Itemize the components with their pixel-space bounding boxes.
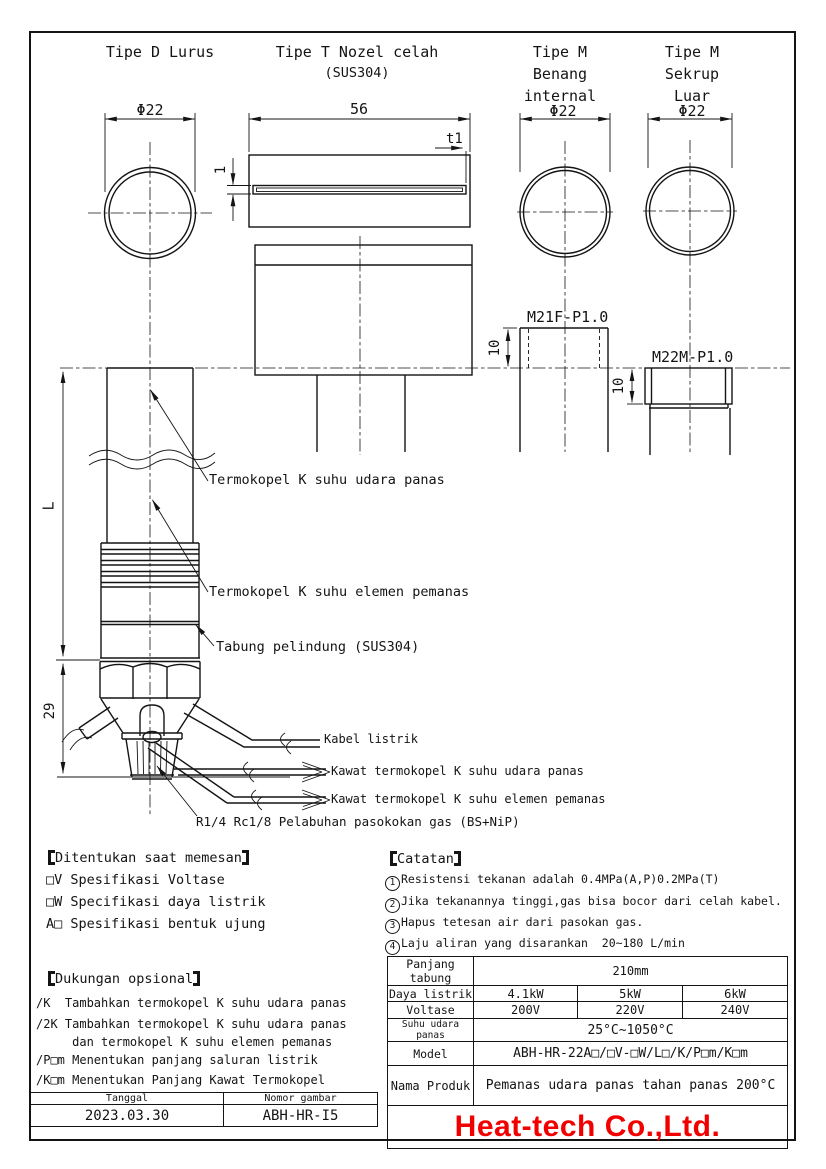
view-tipe-m-luar xyxy=(627,113,737,455)
note-text: Jika tekanannya tinggi,gas bisa bocor da… xyxy=(401,894,782,908)
spec-label: Panjang tabung xyxy=(388,957,474,986)
bracket-open-icon xyxy=(46,971,55,986)
spec-value: 210mm xyxy=(474,957,788,986)
notes-heading-text: Catatan xyxy=(397,851,454,867)
table-row: Heat-tech Co.,Ltd. xyxy=(388,1106,788,1149)
optional-item: /K□m Menentukan Panjang Kawat Termokopel xyxy=(36,1074,325,1088)
table-row: 2023.03.30 ABH-HR-I5 xyxy=(31,1105,378,1127)
label-power-cable: Kabel listrik xyxy=(324,733,418,747)
ordering-item: □V Spesifikasi Voltase xyxy=(46,873,225,889)
notes-heading: Catatan xyxy=(388,851,463,868)
drawing-number-value: ABH-HR-I5 xyxy=(224,1105,378,1127)
dim-nozzle-length: 56 xyxy=(350,101,368,118)
view-title-tipe-m-internal-1: Tipe M xyxy=(533,44,587,61)
view-title-tipe-d: Tipe D Lurus xyxy=(106,44,214,61)
circled-number-icon: 4 xyxy=(385,940,400,955)
cables-wires xyxy=(148,704,330,810)
table-row: Voltase 200V 220V 240V xyxy=(388,1002,788,1019)
optional-item: /2K Tambahkan termokopel K suhu udara pa… xyxy=(36,1018,347,1032)
date-label: Tanggal xyxy=(31,1093,224,1105)
label-wire-heater: Kawat termokopel K suhu elemen pemanas xyxy=(331,793,606,807)
spec-value: ABH-HR-22A□/□V-□W/L□/K/P□m/K□m xyxy=(474,1042,788,1066)
spec-label: Nama Produk xyxy=(388,1066,474,1106)
ordering-item: □W Specifikasi daya listrik xyxy=(46,895,265,911)
label-thermocouple-air: Termokopel K suhu udara panas xyxy=(209,473,445,489)
optional-heading: Dukungan opsional xyxy=(46,971,202,988)
note-item: 4Laju aliran yang disarankan 20~180 L/mi… xyxy=(385,937,685,955)
dim-dia-m-luar: Φ22 xyxy=(678,103,705,120)
optional-item: dan termokopel K suhu elemen pemanas xyxy=(36,1036,332,1050)
view-main-body xyxy=(62,142,215,815)
view-tipe-m-internal xyxy=(503,113,613,452)
note-text: Hapus tetesan air dari pasokan gas. xyxy=(401,915,643,929)
spec-value: 25°C~1050°C xyxy=(474,1019,788,1042)
drawing-number-label: Nomor gambar xyxy=(224,1093,378,1105)
spec-value: 240V xyxy=(683,1002,788,1019)
dim-thread-depth-m22m: 10 xyxy=(611,378,627,395)
note-item: 2Jika tekanannya tinggi,gas bisa bocor d… xyxy=(385,895,782,913)
spec-label: Daya listrik xyxy=(388,986,474,1002)
note-text: Laju aliran yang disarankan 20~180 L/min xyxy=(401,936,685,950)
spec-table: Panjang tabung 210mm Daya listrik 4.1kW … xyxy=(387,956,788,1149)
optional-heading-text: Dukungan opsional xyxy=(55,971,193,987)
table-row: Tanggal Nomor gambar xyxy=(31,1093,378,1105)
label-gas-port: R1/4 Rc1/8 Pelabuhan pasokokan gas (BS+N… xyxy=(196,815,520,829)
bracket-close-icon xyxy=(242,850,251,865)
bracket-close-icon xyxy=(193,971,202,986)
company-logo: Heat-tech Co.,Ltd. xyxy=(388,1106,788,1149)
spec-value: Pemanas udara panas tahan panas 200°C xyxy=(474,1066,788,1106)
spec-value: 220V xyxy=(578,1002,683,1019)
optional-item: /P□m Menentukan panjang saluran listrik xyxy=(36,1054,318,1068)
length-dimensions xyxy=(56,372,290,777)
dim-body-length: L xyxy=(40,501,57,510)
ordering-heading: Ditentukan saat memesan xyxy=(46,850,251,867)
thread-label-m22m: M22M-P1.0 xyxy=(652,349,733,366)
ordering-item: A□ Spesifikasi bentuk ujung xyxy=(46,917,265,933)
dim-thread-depth-m21f: 10 xyxy=(487,340,503,357)
ordering-heading-text: Ditentukan saat memesan xyxy=(55,850,242,866)
spec-value: 5kW xyxy=(578,986,683,1002)
bracket-open-icon xyxy=(46,850,55,865)
circled-number-icon: 1 xyxy=(385,876,400,891)
drawing-sheet: Tipe D Lurus Tipe T Nozel celah (SUS304)… xyxy=(0,0,826,1169)
note-item: 1Resistensi tekanan adalah 0.4MPa(A,P)0.… xyxy=(385,873,720,891)
view-title-tipe-m-luar-2: Sekrup xyxy=(665,66,719,83)
material-label: (SUS304) xyxy=(324,66,389,82)
spec-value: 4.1kW xyxy=(474,986,578,1002)
table-row: Panjang tabung 210mm xyxy=(388,957,788,986)
spec-value: 200V xyxy=(474,1002,578,1019)
spec-label: Voltase xyxy=(388,1002,474,1019)
dim-dia-m-internal: Φ22 xyxy=(549,103,576,120)
optional-item: /K Tambahkan termokopel K suhu udara pan… xyxy=(36,997,347,1011)
thread-label-m21f: M21F-P1.0 xyxy=(527,309,608,326)
table-row: Daya listrik 4.1kW 5kW 6kW xyxy=(388,986,788,1002)
note-text: Resistensi tekanan adalah 0.4MPa(A,P)0.2… xyxy=(401,872,720,886)
spec-label: Model xyxy=(388,1042,474,1066)
dim-wall-thickness: t1 xyxy=(446,131,463,147)
table-row: Suhu udara panas 25°C~1050°C xyxy=(388,1019,788,1042)
circled-number-icon: 2 xyxy=(385,898,400,913)
label-wire-air: Kawat termokopel K suhu udara panas xyxy=(331,765,584,779)
dim-lower-section: 29 xyxy=(42,703,58,720)
date-value: 2023.03.30 xyxy=(31,1105,224,1127)
label-thermocouple-heater: Termokopel K suhu elemen pemanas xyxy=(209,585,469,601)
dim-slot-width: 1 xyxy=(213,166,229,174)
view-title-tipe-t: Tipe T Nozel celah xyxy=(276,44,439,61)
bracket-close-icon xyxy=(454,851,463,866)
spec-value: 6kW xyxy=(683,986,788,1002)
note-item: 3Hapus tetesan air dari pasokan gas. xyxy=(385,916,643,934)
dim-dia-tipe-d: Φ22 xyxy=(136,102,163,119)
bracket-open-icon xyxy=(388,851,397,866)
spec-label: Suhu udara panas xyxy=(388,1019,474,1042)
label-protective-tube: Tabung pelindung (SUS304) xyxy=(216,640,419,656)
view-title-tipe-m-internal-2: Benang xyxy=(533,66,587,83)
table-row: Nama Produk Pemanas udara panas tahan pa… xyxy=(388,1066,788,1106)
table-row: Model ABH-HR-22A□/□V-□W/L□/K/P□m/K□m xyxy=(388,1042,788,1066)
circled-number-icon: 3 xyxy=(385,919,400,934)
view-title-tipe-m-luar-1: Tipe M xyxy=(665,44,719,61)
title-block: Tanggal Nomor gambar 2023.03.30 ABH-HR-I… xyxy=(30,1092,378,1127)
view-tipe-t xyxy=(227,113,472,455)
